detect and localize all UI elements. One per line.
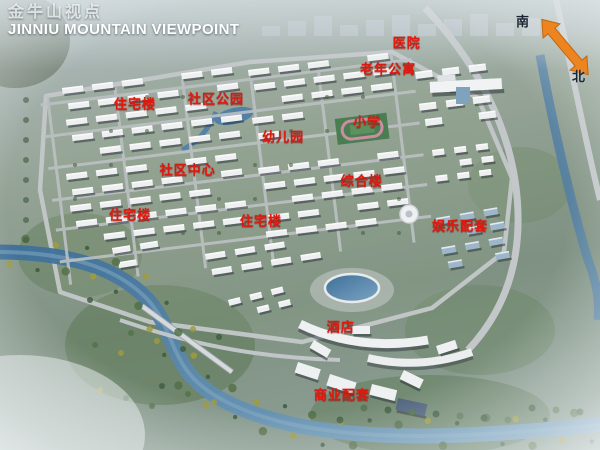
aerial-viewpoint-rendering: 金牛山视点 JINNIU MOUNTAIN VIEWPOINT 南 北 医院老年… <box>0 0 600 450</box>
compass-south-label: 南 <box>516 11 529 30</box>
compass: 南 北 <box>496 0 600 104</box>
compass-north-label: 北 <box>572 66 585 85</box>
compass-arrow-icon <box>496 0 600 104</box>
